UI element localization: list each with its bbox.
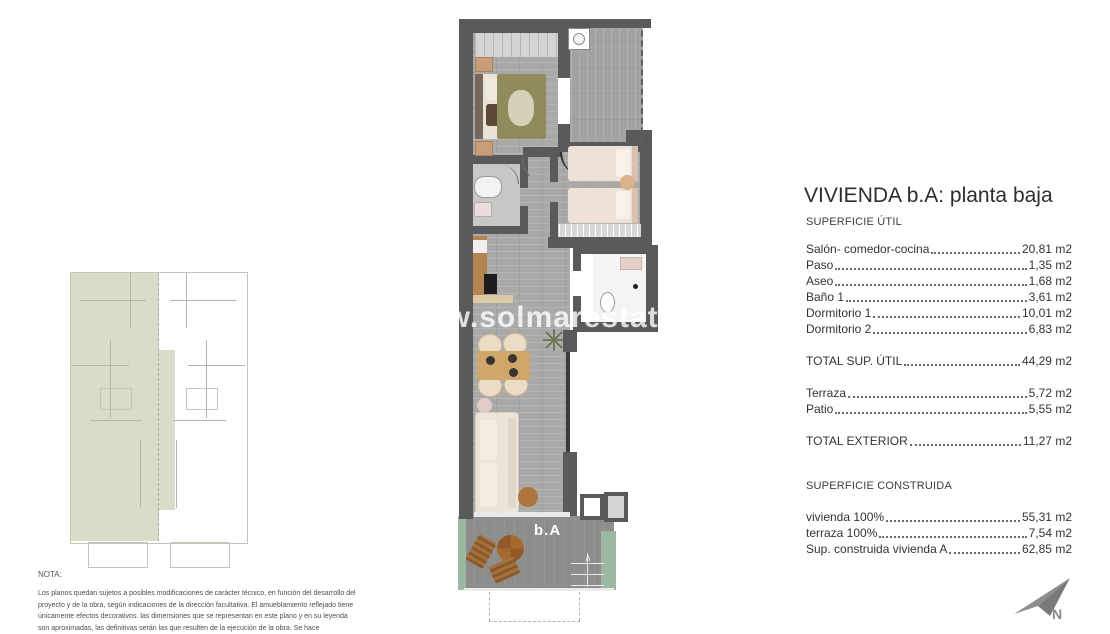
terrace-edge [464, 588, 614, 591]
side-table [518, 487, 538, 507]
site-plan-divider-line [158, 273, 159, 541]
exterior-rows: Terraza5,72 m2Patio5,55 m2 [806, 384, 1072, 416]
bathroom-sink [474, 202, 492, 217]
table-setting [509, 368, 518, 377]
surface-row-label: Paso [806, 258, 833, 272]
wall-segment [466, 155, 528, 164]
wall-segment [626, 130, 652, 144]
site-plan-room-outline [186, 388, 218, 410]
surface-row-label: Terraza [806, 386, 846, 400]
dotted-leader [846, 300, 1027, 302]
nightstand [475, 57, 493, 72]
window-dormitorio-2 [553, 224, 641, 237]
dotted-leader [931, 252, 1020, 254]
dotted-leader [886, 520, 1020, 522]
dotted-leader [873, 332, 1026, 334]
wall-segment [459, 19, 473, 519]
surface-row-value: 3,61 m2 [1029, 290, 1072, 304]
wardrobe-dormitorio-1 [475, 33, 561, 57]
total-util-label: TOTAL SUP. ÚTIL [806, 354, 902, 368]
note-title: NOTA: [38, 570, 62, 579]
storage-box [604, 492, 628, 522]
surface-row: vivienda 100%55,31 m2 [806, 508, 1072, 524]
surface-row-label: vivienda 100% [806, 510, 884, 524]
site-plan-porch-outline [88, 542, 148, 568]
site-plan-wall-line [186, 273, 187, 328]
site-plan-outline [70, 272, 248, 544]
surface-row: Sup. construida vivienda A62,85 m2 [806, 540, 1072, 556]
dotted-leader [879, 536, 1026, 538]
storage-box [580, 494, 604, 520]
surface-row-label: Patio [806, 402, 833, 416]
construida-rows: vivienda 100%55,31 m2terraza 100%7,54 m2… [806, 508, 1072, 556]
site-plan-porch-outline [170, 542, 230, 568]
surface-row-value: 55,31 m2 [1022, 510, 1072, 524]
table-setting [508, 354, 517, 363]
dotted-leader [835, 268, 1026, 270]
north-arrow-icon [1012, 576, 1072, 618]
site-plan-wall-line [188, 365, 245, 366]
drain-dot [633, 284, 638, 289]
sofa-armrest [508, 418, 516, 508]
surface-row-value: 7,54 m2 [1029, 526, 1072, 540]
total-exterior-row: TOTAL EXTERIOR 11,27 m2 [806, 432, 1072, 448]
projection-dash [489, 621, 580, 622]
kitchen-stove [484, 274, 497, 294]
site-plan-wall-line [176, 440, 177, 508]
note-body: Los planos quedan sujetos a posibles mod… [38, 588, 356, 634]
pillow [616, 191, 630, 219]
bed-headboard [475, 74, 483, 139]
washing-machine-drum [573, 33, 585, 45]
dotted-leader [873, 316, 1020, 318]
surface-row: Patio5,55 m2 [806, 400, 1072, 416]
sofa-cushion [480, 463, 497, 507]
aseo-basin [620, 257, 642, 270]
surface-row-value: 6,83 m2 [1029, 322, 1072, 336]
site-plan-wall-line [90, 420, 142, 421]
kitchen-fridge [473, 240, 487, 253]
surface-row: terraza 100%7,54 m2 [806, 524, 1072, 540]
pillow [616, 149, 630, 177]
site-plan-wall-line [80, 300, 146, 301]
surface-row-label: terraza 100% [806, 526, 877, 540]
bed-throw [508, 90, 534, 126]
bolster-cushion [620, 175, 635, 190]
total-exterior-label: TOTAL EXTERIOR [806, 434, 908, 448]
surface-row-label: Aseo [806, 274, 833, 288]
surface-row-value: 10,01 m2 [1022, 306, 1072, 320]
total-util-row: TOTAL SUP. ÚTIL 44,29 m2 [806, 352, 1072, 368]
sofa-cushion [480, 420, 497, 460]
unit-label: b.A [534, 522, 561, 539]
surface-row-value: 5,72 m2 [1029, 386, 1072, 400]
surface-row: Dormitorio 26,83 m2 [806, 320, 1072, 336]
dotted-leader [835, 284, 1026, 286]
section-superficie-construida: SUPERFICIE CONSTRUIDA [806, 480, 952, 492]
bed-headboard [632, 146, 638, 181]
wall-segment [563, 19, 651, 28]
dotted-leader [835, 412, 1026, 414]
site-plan-wall-line [140, 440, 141, 508]
surface-row: Baño 13,61 m2 [806, 288, 1072, 304]
surface-row: Terraza5,72 m2 [806, 384, 1072, 400]
site-plan-wall-line [130, 273, 131, 328]
wall-segment [459, 19, 572, 33]
surface-row-label: Sup. construida vivienda A [806, 542, 947, 556]
dotted-leader [904, 364, 1020, 366]
site-plan-wall-line [174, 420, 226, 421]
terrace-threshold [474, 512, 570, 517]
surface-row: Salón- comedor-cocina20,81 m2 [806, 240, 1072, 256]
wall-segment [466, 226, 528, 234]
surface-row-value: 1,68 m2 [1029, 274, 1072, 288]
page-title: VIVIENDA b.A: planta baja [804, 184, 1053, 208]
pouf [477, 398, 492, 413]
surface-row: Dormitorio 110,01 m2 [806, 304, 1072, 320]
hedge-left [458, 516, 466, 590]
table-setting [486, 356, 495, 365]
site-plan-room-outline [100, 388, 132, 410]
stairs-arrow-icon: ∧ [580, 554, 596, 564]
wall-segment [563, 452, 577, 516]
projection-dash [579, 592, 580, 621]
nightstand [475, 141, 493, 156]
wall-segment [573, 245, 658, 254]
wall-segment [523, 147, 561, 157]
wall-segment [640, 142, 652, 244]
surface-row-value: 1,35 m2 [1029, 258, 1072, 272]
total-exterior-value: 11,27 m2 [1023, 434, 1072, 448]
surface-row: Aseo1,68 m2 [806, 272, 1072, 288]
bed-headboard [632, 188, 638, 223]
watermark: www.solmarestates.com [398, 301, 818, 335]
wall-segment [550, 202, 558, 246]
dotted-leader [910, 444, 1021, 446]
door-opening [558, 78, 570, 124]
util-rows: Salón- comedor-cocina20,81 m2Paso1,35 m2… [806, 240, 1072, 336]
dining-table [477, 351, 530, 380]
section-superficie-util: SUPERFICIE ÚTIL [806, 216, 902, 228]
patio-boundary-line [641, 21, 643, 143]
bathtub [474, 176, 502, 198]
dotted-leader [949, 552, 1020, 554]
north-label: N [1052, 606, 1062, 622]
dotted-leader [848, 396, 1027, 398]
surface-row-label: Salón- comedor-cocina [806, 242, 929, 256]
total-util-value: 44,29 m2 [1022, 354, 1072, 368]
projection-dash [489, 592, 490, 621]
site-plan-wall-line [170, 300, 236, 301]
surface-row-value: 62,85 m2 [1022, 542, 1072, 556]
surface-row-value: 20,81 m2 [1022, 242, 1072, 256]
surface-row: Paso1,35 m2 [806, 256, 1072, 272]
wall-segment [573, 245, 581, 271]
floorplan-page: { "watermark": "www.solmarestates.com", … [0, 0, 1110, 626]
site-plan-wall-line [71, 365, 129, 366]
surface-row-value: 5,55 m2 [1029, 402, 1072, 416]
